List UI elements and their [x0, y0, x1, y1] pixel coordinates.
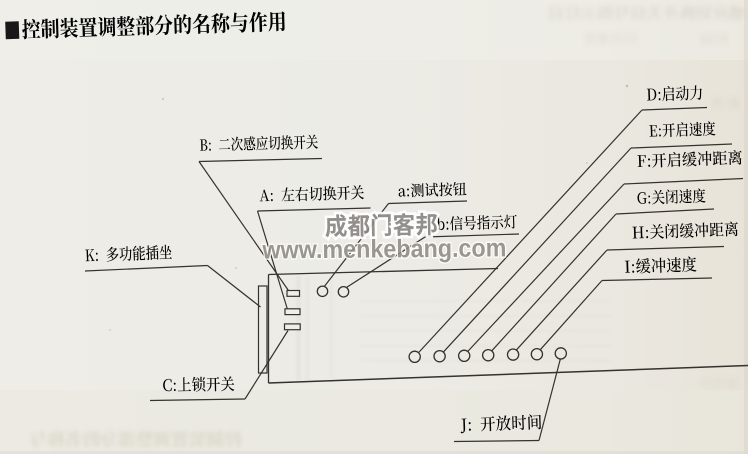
svg-text:www.menkebang.com: www.menkebang.com — [261, 234, 506, 264]
